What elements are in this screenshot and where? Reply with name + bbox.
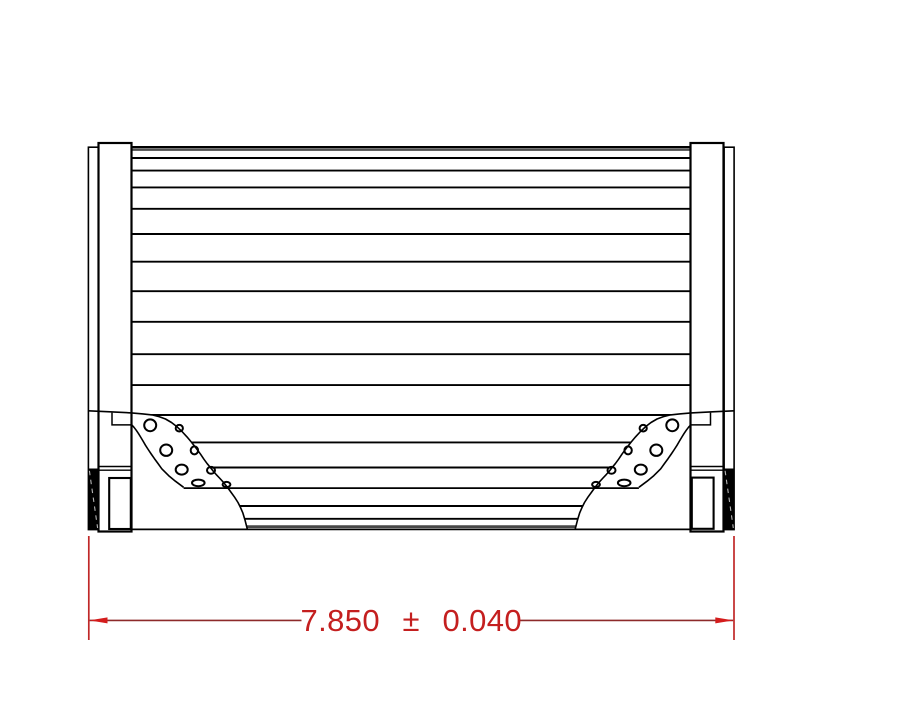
svg-text:7.850 ± 0.040: 7.850 ± 0.040: [300, 603, 522, 638]
